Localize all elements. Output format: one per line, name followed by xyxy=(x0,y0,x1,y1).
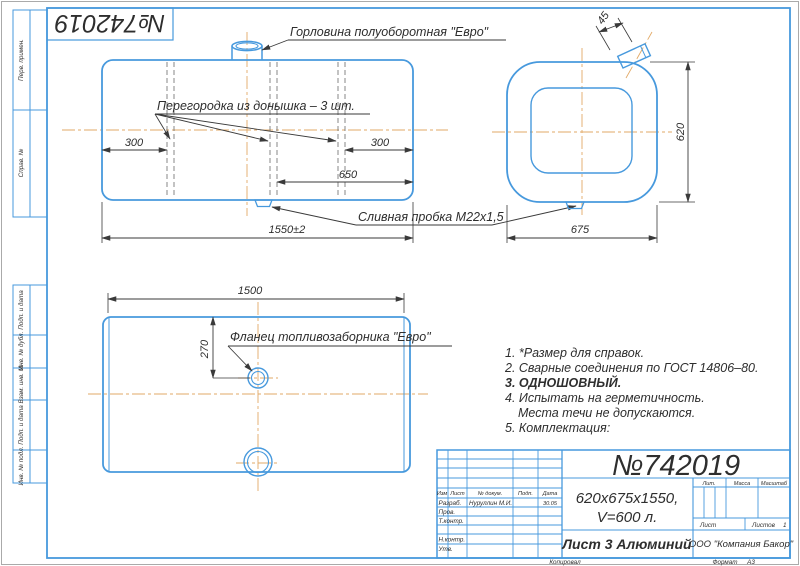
doc-number: №742019 xyxy=(612,450,740,482)
dim-1550: 1550±2 xyxy=(269,224,306,236)
note-5: 5. Комплектация: xyxy=(505,421,610,435)
lit-label: Лит. xyxy=(701,481,715,487)
col-podp: Подп. xyxy=(518,491,533,497)
dim-675: 675 xyxy=(571,224,590,236)
title-block: Изм Лист № докум. Подп. Дата Разраб. Нур… xyxy=(437,450,794,558)
end-view-drain-stub xyxy=(566,202,584,209)
company-name: ООО "Компания Бакор" xyxy=(689,539,794,550)
flange-label: Фланец топливозаборника "Евро" xyxy=(230,330,431,344)
row-tkontr: Т.контр. xyxy=(439,518,464,525)
drain-plug-stub xyxy=(255,200,272,207)
dim-270: 270 xyxy=(199,339,211,359)
kopiroval-label: Копировал xyxy=(549,559,581,566)
margin-label-vzam-inv: Взам. инв. № xyxy=(18,364,25,403)
format-label: Формат xyxy=(712,559,737,566)
dim-45: 45 xyxy=(595,9,612,27)
left-margin-columns: Перв. примен. Справ. № Подп. и дата Инв.… xyxy=(13,10,47,486)
end-view: 45 620 675 xyxy=(492,9,695,243)
margin-label-sprav-no: Справ. № xyxy=(18,149,25,178)
razrab-date: 30.05 xyxy=(543,501,558,507)
massa-label: Масса xyxy=(734,481,751,487)
note-1: 1. *Размер для справок. xyxy=(505,346,644,360)
row-nkontr: Н.контр. xyxy=(439,537,466,544)
format-value: А3 xyxy=(746,559,755,566)
drawing-sheet: Перв. примен. Справ. № Подп. и дата Инв.… xyxy=(0,0,800,566)
margin-label-podp-data-1: Подп. и дата xyxy=(17,290,25,330)
listov-label: Листов xyxy=(751,522,776,529)
stamp-number: №742019 xyxy=(55,9,166,37)
tank-size: 620х675х1550, xyxy=(576,490,679,507)
dim-1500: 1500 xyxy=(238,285,263,297)
col-list: Лист xyxy=(449,491,465,497)
dim-300-right: 300 xyxy=(371,137,390,149)
blueprint-canvas: Перв. примен. Справ. № Подп. и дата Инв.… xyxy=(0,0,800,566)
razrab-name: Нуруллин М.И. xyxy=(469,500,512,507)
drain-plug-label: Сливная пробка М22х1,5 xyxy=(358,210,504,224)
end-view-inner xyxy=(531,88,632,173)
neck-label: Горловина полуоборотная "Евро" xyxy=(290,25,489,39)
corner-stamp: №742019 xyxy=(47,8,173,40)
material: Лист 3 Алюминий xyxy=(561,536,692,552)
masshtab-label: Масштаб xyxy=(761,481,788,487)
margin-label-inv-podl: Инв. № подл. xyxy=(17,446,25,485)
row-razrab: Разраб. xyxy=(439,499,462,507)
note-4: 4. Испытать на герметичность. xyxy=(505,391,705,405)
bottom-view: 1500 270 Фланец топливозаборника "Евро" xyxy=(88,285,452,492)
row-prov: Пров. xyxy=(439,509,456,516)
side-view: 300 300 650 1550±2 Горловина полуоборотн… xyxy=(62,25,576,243)
row-utv: Утв. xyxy=(438,546,453,553)
baffle-label: Перегородка из донышка – 3 шт. xyxy=(157,99,355,113)
dim-620: 620 xyxy=(675,122,687,141)
col-data: Дата xyxy=(542,491,558,497)
col-izm: Изм xyxy=(437,491,448,497)
note-4-line-2: Места течи не допускаются. xyxy=(518,406,695,420)
note-3: 3. ОДНОШОВНЫЙ. xyxy=(505,374,621,390)
dim-650: 650 xyxy=(339,169,358,181)
technical-notes: 1. *Размер для справок. 2. Сварные соеди… xyxy=(504,346,759,435)
list-label: Лист xyxy=(699,522,716,529)
listov-value: 1 xyxy=(783,522,787,529)
margin-label-perv-primen: Перв. примен. xyxy=(18,39,25,81)
dim-300-left: 300 xyxy=(125,137,144,149)
margin-label-podp-data-2: Подп. и дата xyxy=(17,405,25,445)
tank-volume: V=600 л. xyxy=(597,509,658,526)
note-2: 2. Сварные соединения по ГОСТ 14806–80. xyxy=(504,361,759,375)
col-doc: № докум. xyxy=(478,491,503,497)
